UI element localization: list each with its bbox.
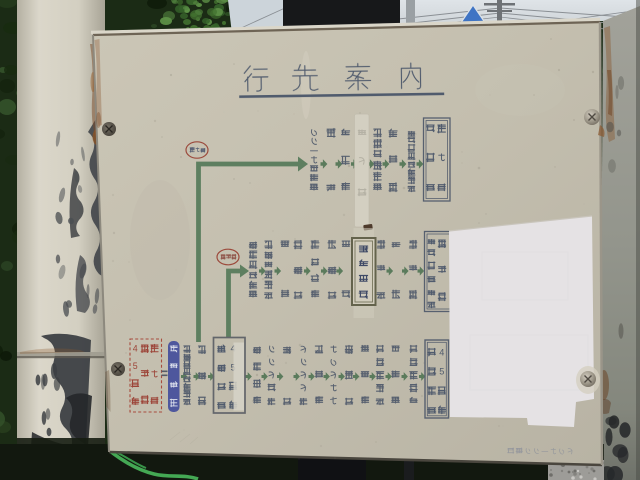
svg-text:4: 4 xyxy=(439,348,444,358)
svg-text:4: 4 xyxy=(133,343,138,353)
svg-text:5: 5 xyxy=(439,367,444,377)
svg-text:5: 5 xyxy=(133,361,138,371)
